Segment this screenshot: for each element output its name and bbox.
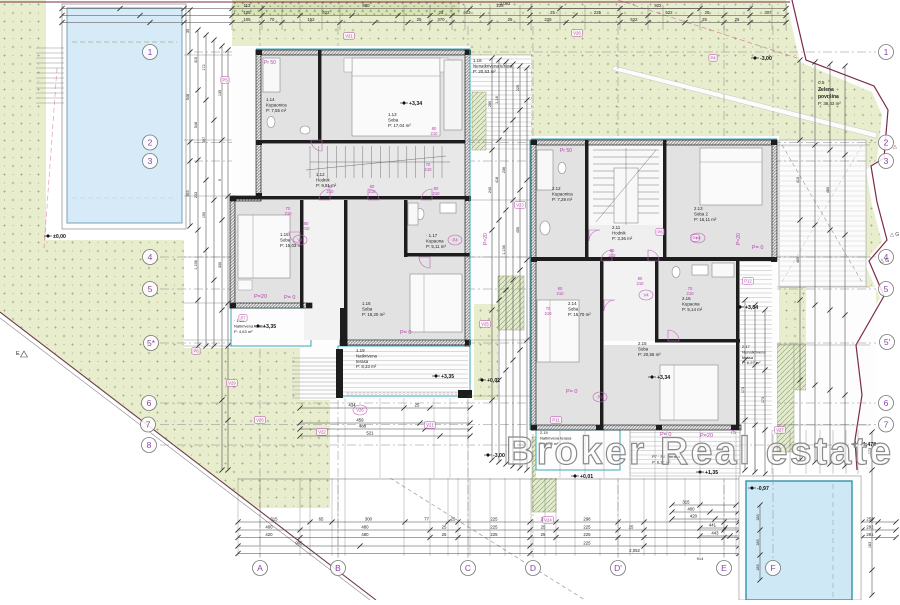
svg-text:25: 25	[417, 17, 422, 22]
svg-text:V26: V26	[573, 31, 581, 36]
svg-text:5: 5	[884, 284, 889, 294]
svg-text:Hodnik: Hodnik	[316, 177, 330, 182]
svg-text:441: 441	[709, 523, 717, 528]
svg-text:1: 1	[884, 47, 889, 57]
svg-text:307: 307	[764, 10, 772, 15]
svg-text:P= 0: P= 0	[284, 295, 295, 301]
svg-text:V21: V21	[345, 34, 353, 39]
svg-text:2: 2	[884, 138, 889, 148]
svg-text:105: 105	[243, 10, 251, 15]
svg-text:+3,35: +3,35	[441, 374, 454, 380]
svg-text:370: 370	[437, 17, 445, 22]
svg-text:P=20: P=20	[254, 294, 267, 300]
svg-text:210: 210	[433, 191, 441, 196]
svg-text:6: 6	[147, 398, 152, 408]
svg-text:459: 459	[356, 418, 364, 423]
svg-text:V24: V24	[544, 518, 552, 523]
svg-text:225: 225	[594, 10, 602, 15]
svg-text:1,136: 1,136	[502, 245, 506, 255]
svg-text:210: 210	[557, 291, 565, 296]
svg-text:183: 183	[756, 564, 760, 570]
svg-text:E: E	[721, 563, 727, 573]
svg-text:420: 420	[265, 532, 273, 537]
svg-text:+3,34: +3,34	[745, 305, 758, 311]
svg-text:25: 25	[541, 525, 546, 530]
svg-text:Kupaonica: Kupaonica	[266, 102, 287, 107]
svg-text:800: 800	[362, 3, 370, 8]
svg-text:25: 25	[735, 17, 740, 22]
svg-text:P6: P6	[657, 230, 663, 235]
svg-text:C: C	[465, 563, 471, 573]
svg-text:V26: V26	[256, 418, 264, 423]
svg-text:210: 210	[431, 131, 439, 136]
svg-text:315: 315	[682, 500, 690, 505]
svg-text:1.14: 1.14	[266, 97, 275, 102]
svg-text:V25: V25	[481, 322, 489, 327]
svg-text:P: 7,28 m²: P: 7,28 m²	[552, 197, 573, 202]
svg-text:25: 25	[541, 532, 546, 537]
svg-text:434: 434	[348, 403, 356, 408]
svg-text:Soba: Soba	[638, 346, 649, 351]
svg-text:443: 443	[711, 531, 719, 536]
svg-text:Zelena: Zelena	[818, 87, 834, 93]
svg-text:5: 5	[148, 284, 153, 294]
svg-text:P: 20,55 m²: P: 20,55 m²	[638, 352, 661, 357]
svg-text:70: 70	[270, 17, 275, 22]
svg-text:terasa: terasa	[356, 359, 369, 364]
svg-text:terasa: terasa	[742, 355, 754, 360]
svg-text:548: 548	[186, 94, 190, 100]
svg-text:P: 18,20 m²: P: 18,20 m²	[362, 312, 385, 317]
svg-text:105: 105	[243, 17, 251, 22]
svg-text:225: 225	[490, 525, 498, 530]
svg-text:P: 5,14 m²: P: 5,14 m²	[682, 307, 703, 312]
svg-text:5': 5'	[884, 337, 891, 347]
svg-text:V21: V21	[426, 423, 434, 428]
svg-text:1,156: 1,156	[194, 260, 198, 270]
svg-text:488: 488	[359, 424, 367, 429]
svg-text:7: 7	[146, 420, 151, 430]
svg-text:422: 422	[322, 10, 330, 15]
svg-text:V22: V22	[318, 430, 326, 435]
svg-text:+3,34: +3,34	[657, 375, 670, 381]
svg-text:225: 225	[583, 525, 591, 530]
svg-text:225: 225	[496, 3, 504, 8]
svg-text:V29: V29	[228, 381, 236, 386]
svg-text:Kupaona: Kupaona	[426, 238, 444, 243]
svg-text:V23: V23	[516, 203, 524, 208]
svg-text:240: 240	[488, 187, 492, 193]
svg-text:210: 210	[687, 291, 695, 296]
svg-text:Pr 50: Pr 50	[560, 148, 572, 154]
svg-text:Soba 2: Soba 2	[694, 211, 708, 216]
svg-text:225: 225	[544, 17, 552, 22]
svg-text:455: 455	[516, 227, 520, 233]
svg-text:183: 183	[756, 514, 760, 520]
svg-text:485: 485	[826, 187, 830, 193]
svg-text:Soba: Soba	[568, 306, 579, 311]
svg-text:35: 35	[186, 29, 190, 33]
svg-text:315: 315	[270, 517, 278, 522]
svg-text:393: 393	[186, 190, 190, 196]
svg-text:1: 1	[148, 47, 153, 57]
svg-text:V4: V4	[297, 238, 303, 243]
svg-text:P: 4,63 m²: P: 4,63 m²	[234, 329, 253, 334]
svg-text:P: 16,11 m²: P: 16,11 m²	[694, 217, 717, 222]
svg-text:1.16: 1.16	[362, 301, 371, 306]
svg-text:2.13: 2.13	[694, 206, 703, 211]
svg-text:Broker Real estate: Broker Real estate	[506, 430, 894, 473]
svg-text:površina: površina	[818, 94, 839, 100]
svg-text:183: 183	[868, 542, 872, 548]
svg-text:P: 17,04 m²: P: 17,04 m²	[388, 123, 411, 128]
svg-text:190: 190	[202, 212, 206, 218]
svg-text:Soba: Soba	[388, 117, 399, 122]
svg-text:9: 9	[218, 179, 222, 181]
svg-text:P: 20,53 m²: P: 20,53 m²	[473, 69, 496, 74]
svg-text:P7: P7	[240, 316, 246, 321]
svg-text:281: 281	[866, 532, 874, 537]
svg-text:210: 210	[303, 226, 311, 231]
svg-text:△ G: △ G	[890, 232, 899, 238]
svg-text:914: 914	[697, 556, 704, 561]
svg-text:210: 210	[609, 253, 617, 258]
svg-text:2.15: 2.15	[638, 341, 647, 346]
svg-text:236: 236	[502, 167, 506, 173]
svg-text:922: 922	[654, 3, 662, 8]
svg-text:183: 183	[756, 539, 760, 545]
svg-text:25: 25	[508, 17, 513, 22]
svg-text:Kupaonica: Kupaonica	[552, 191, 573, 196]
svg-text:172: 172	[202, 64, 206, 70]
svg-text:65: 65	[319, 517, 324, 522]
svg-text:P12: P12	[744, 279, 752, 284]
svg-text:225: 225	[583, 541, 591, 546]
svg-text:25: 25	[442, 532, 447, 537]
svg-text:25: 25	[705, 10, 710, 15]
svg-text:298: 298	[583, 517, 591, 522]
svg-text:1.18: 1.18	[473, 58, 482, 63]
svg-text:210: 210	[285, 211, 293, 216]
svg-text:905: 905	[295, 541, 303, 546]
svg-text:V4: V4	[695, 236, 701, 241]
svg-text:P: 15,03 m²: P: 15,03 m²	[280, 243, 303, 248]
svg-text:418: 418	[495, 177, 499, 183]
svg-text:233: 233	[194, 192, 198, 198]
svg-text:1.13: 1.13	[388, 112, 397, 117]
svg-text:2,052: 2,052	[629, 548, 640, 553]
svg-text:415: 415	[796, 177, 800, 183]
svg-text:210: 210	[327, 189, 335, 194]
svg-text:300: 300	[365, 517, 373, 522]
svg-text:522: 522	[665, 10, 673, 15]
svg-text:330: 330	[218, 262, 222, 268]
svg-text:P: 5,11 m²: P: 5,11 m²	[426, 244, 446, 249]
svg-text:2: 2	[148, 138, 153, 148]
svg-text:P: 15,70 m²: P: 15,70 m²	[568, 312, 591, 317]
svg-text:V4: V4	[643, 293, 649, 298]
svg-text:77: 77	[424, 517, 429, 522]
svg-text:D': D'	[614, 563, 622, 573]
svg-text:Soba: Soba	[362, 306, 373, 311]
svg-text:7: 7	[884, 420, 889, 430]
svg-text:400: 400	[265, 525, 273, 530]
svg-text:P4: P4	[452, 238, 458, 243]
svg-text:2.12: 2.12	[552, 186, 561, 191]
svg-text:±0,00: ±0,00	[53, 234, 66, 240]
svg-text:+3,34: +3,34	[409, 101, 422, 107]
svg-text:V26: V26	[356, 408, 364, 413]
svg-text:Pr 50: Pr 50	[264, 60, 276, 66]
svg-text:A: A	[257, 563, 263, 573]
svg-text:P: 8,33 m²: P: 8,33 m²	[356, 364, 377, 369]
svg-text:465: 465	[796, 257, 800, 263]
svg-text:D: D	[530, 563, 536, 573]
svg-text:522: 522	[630, 17, 638, 22]
svg-text:Nenatkrivena terasa: Nenatkrivena terasa	[473, 63, 513, 68]
svg-text:Kupaona: Kupaona	[682, 301, 700, 306]
svg-text:1.15: 1.15	[280, 232, 289, 237]
svg-text:225: 225	[490, 532, 498, 537]
svg-text:P9: P9	[597, 395, 603, 400]
svg-text:25: 25	[415, 403, 420, 408]
svg-text:5*: 5*	[147, 338, 156, 348]
svg-text:-3,00: -3,00	[760, 56, 772, 62]
svg-text:+3,35: +3,35	[263, 324, 276, 330]
svg-text:0.5: 0.5	[818, 80, 825, 85]
svg-text:P: 7,55 m²: P: 7,55 m²	[266, 108, 287, 113]
svg-text:P: 38,43 m²: P: 38,43 m²	[818, 101, 841, 106]
svg-text:E: E	[16, 351, 20, 357]
svg-text:210: 210	[637, 281, 645, 286]
svg-text:3: 3	[884, 156, 889, 166]
svg-text:2.14: 2.14	[568, 301, 577, 306]
svg-text:173: 173	[741, 387, 745, 393]
svg-text:2.17: 2.17	[742, 344, 751, 349]
svg-text:25: 25	[629, 525, 634, 530]
svg-text:3: 3	[148, 156, 153, 166]
svg-text:Hodnik: Hodnik	[612, 230, 626, 235]
svg-text:2.16: 2.16	[682, 296, 691, 301]
svg-text:B: B	[335, 563, 341, 573]
svg-text:· 1.17: · 1.17	[426, 233, 438, 238]
svg-text:△: △	[893, 144, 897, 150]
svg-text:210: 210	[545, 311, 553, 316]
svg-text:P11: P11	[552, 418, 560, 423]
svg-text:200: 200	[488, 101, 492, 107]
svg-text:P5: P5	[222, 78, 228, 83]
svg-text:P= 0: P= 0	[752, 245, 763, 251]
svg-text:210: 210	[369, 189, 377, 194]
svg-text:P: 9,81 m²: P: 9,81 m²	[316, 183, 337, 188]
svg-text:113: 113	[244, 3, 251, 8]
svg-text:480: 480	[361, 525, 369, 530]
svg-text:25: 25	[550, 10, 555, 15]
svg-text:25: 25	[442, 525, 447, 530]
svg-text:1.19: 1.19	[356, 348, 365, 353]
svg-text:4: 4	[148, 252, 153, 262]
svg-text:P=20: P=20	[483, 233, 489, 245]
svg-text:315: 315	[194, 57, 198, 63]
svg-text:F: F	[770, 563, 775, 573]
svg-text:P=20: P=20	[736, 233, 742, 245]
svg-text:173: 173	[761, 397, 765, 403]
svg-text:548: 548	[194, 122, 198, 128]
svg-text:25: 25	[439, 10, 444, 15]
svg-text:P= 0: P= 0	[400, 330, 411, 336]
svg-text:P: 3,36 m²: P: 3,36 m²	[612, 236, 633, 241]
svg-text:420: 420	[690, 514, 698, 519]
svg-text:225: 225	[490, 517, 498, 522]
svg-text:8: 8	[147, 440, 152, 450]
svg-text:2.11: 2.11	[612, 225, 621, 230]
svg-text:Soba: Soba	[280, 237, 291, 242]
svg-text:Nenatkrivena: Nenatkrivena	[742, 349, 766, 354]
svg-text:135: 135	[218, 90, 222, 96]
svg-text:P= 0: P= 0	[566, 389, 577, 395]
svg-text:210: 210	[425, 167, 433, 172]
svg-text:6: 6	[884, 398, 889, 408]
svg-text:-0,97: -0,97	[757, 486, 769, 492]
svg-text:225: 225	[583, 532, 591, 537]
svg-text:152: 152	[307, 17, 315, 22]
svg-text:292: 292	[866, 525, 874, 530]
svg-text:521: 521	[366, 431, 374, 436]
svg-text:P8: P8	[193, 349, 199, 354]
svg-text:Natkrivena: Natkrivena	[356, 353, 378, 358]
svg-text:400: 400	[687, 507, 695, 512]
svg-text:225: 225	[516, 85, 520, 91]
svg-text:1.12: 1.12	[316, 172, 325, 177]
svg-text:1,18: 1,18	[495, 96, 499, 103]
svg-text:480: 480	[361, 532, 369, 537]
svg-text:25: 25	[451, 517, 456, 522]
svg-text:303: 303	[463, 10, 471, 15]
svg-text:25: 25	[702, 17, 707, 22]
svg-text:P4: P4	[710, 56, 716, 61]
svg-text:△ G: △ G	[880, 258, 889, 264]
